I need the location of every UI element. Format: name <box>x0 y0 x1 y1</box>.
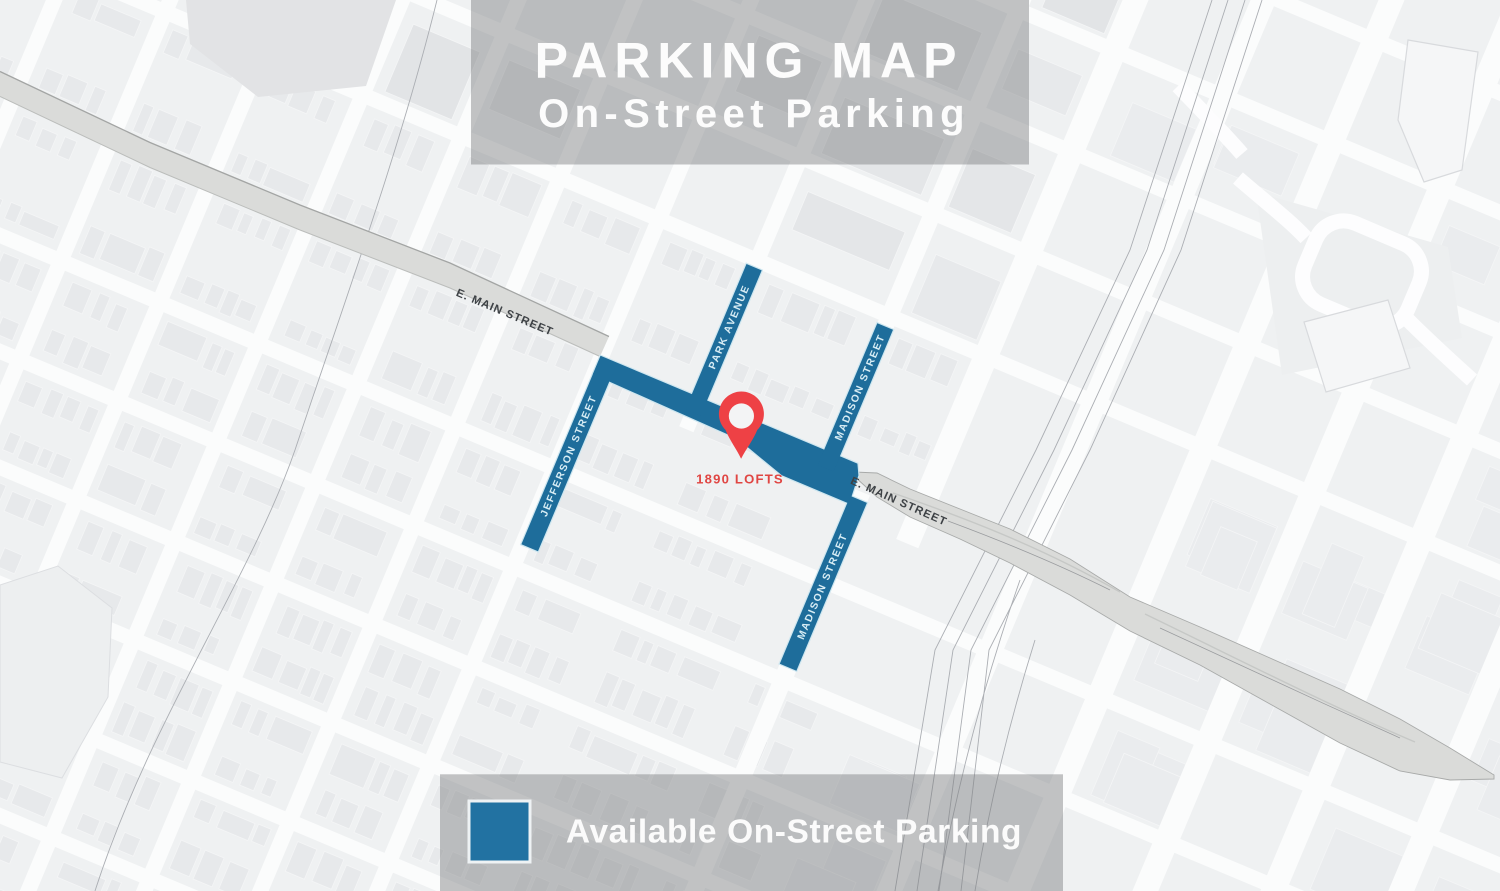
svg-text:Available On-Street Parking: Available On-Street Parking <box>566 814 1022 851</box>
svg-text:1890 LOFTS: 1890 LOFTS <box>696 472 784 487</box>
svg-text:On-Street Parking: On-Street Parking <box>538 92 970 136</box>
svg-text:PARKING MAP: PARKING MAP <box>535 33 964 89</box>
